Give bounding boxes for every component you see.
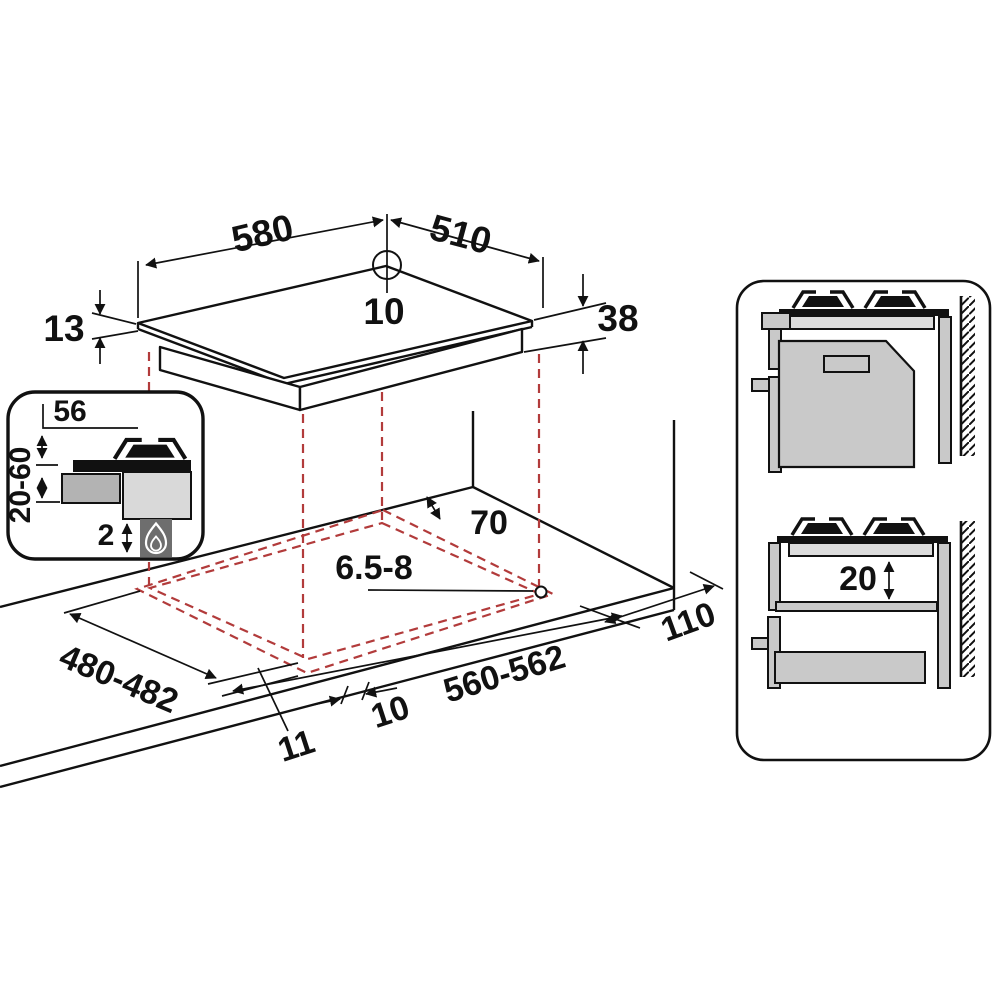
dim-cutout-width-label: 560-562 — [439, 638, 569, 711]
hob-surface-top-view1 — [779, 309, 949, 316]
worktop-front-bottom-edge — [0, 610, 674, 787]
drawer-front — [775, 652, 925, 683]
dim-cutout-width-arrows — [233, 616, 622, 691]
separator-shelf — [776, 602, 937, 611]
dim-cutout-depth-ext1 — [64, 591, 140, 613]
dim-front-overhang-arrow-left — [312, 699, 340, 705]
dim-bottom-clearance-label: 2 — [98, 519, 115, 552]
dim-rim-thickness-label: 13 — [43, 308, 84, 349]
dim-fixing-hole-leader — [368, 590, 533, 591]
dim-body-height-label: 38 — [597, 298, 638, 339]
dim-cutout-width-ext2 — [580, 606, 640, 628]
hob-surface-top-view2 — [777, 536, 948, 543]
dim-rear-clearance-label: 70 — [470, 504, 508, 542]
dim-hole-offset-label: 10 — [363, 291, 404, 332]
cabinet-bracket-left — [752, 379, 769, 391]
dim-rear-clearance-arrows — [427, 497, 440, 519]
inset-hob-body — [123, 472, 191, 519]
cabinet-bracket-left2 — [752, 638, 768, 649]
installation-diagram-page: 70 6.5-8 480-482 560-562 110 10 11 56 — [0, 0, 1000, 1000]
side-view-panel: 20 — [737, 281, 990, 760]
dim-body-ext1 — [534, 303, 606, 320]
dim-side-clearance-label: 56 — [53, 395, 86, 428]
side-view-over-oven — [752, 292, 975, 472]
wall-hatching-bottom — [961, 521, 975, 677]
oven-label-plate — [824, 356, 869, 372]
dim-cutout-depth-label: 480-482 — [54, 637, 184, 721]
worktop-section-view2 — [789, 543, 933, 556]
dim-front-overhang-label: 10 — [367, 688, 415, 736]
inset-adjacent-drawer — [62, 474, 120, 503]
cabinet-side-left-upper2 — [769, 543, 780, 610]
dim-rim-ext2 — [92, 331, 138, 339]
installation-diagram: 70 6.5-8 480-482 560-562 110 10 11 56 — [0, 0, 1000, 1000]
dim-worktop-thickness-label: 20-60 — [4, 447, 37, 524]
worktop-section-view1 — [790, 316, 934, 329]
wall-hatching-top — [961, 296, 975, 456]
dim-hob-depth-label: 510 — [426, 207, 496, 263]
cabinet-side-right — [939, 317, 951, 463]
dim-right-clearance-label: 110 — [656, 595, 721, 649]
dim-body-ext2 — [524, 338, 606, 352]
fixing-hole — [536, 587, 547, 598]
hob-isometric-view — [138, 266, 532, 410]
dim-front-left-leader — [258, 668, 288, 731]
dim-hob-width-label: 580 — [228, 206, 297, 260]
dim-fixing-hole-label: 6.5-8 — [335, 549, 413, 587]
dim-shelf-clearance-label: 20 — [839, 560, 877, 598]
detail-inset: 56 20-60 2 — [4, 392, 203, 559]
cabinet-side-right2 — [938, 543, 950, 688]
dim-rim-ext1 — [92, 313, 136, 324]
dim-right-clearance-ext — [690, 572, 723, 589]
dim-front-left-label: 11 — [273, 722, 319, 769]
inset-worktop-surface — [73, 460, 191, 472]
worktop-left-block — [762, 313, 790, 329]
